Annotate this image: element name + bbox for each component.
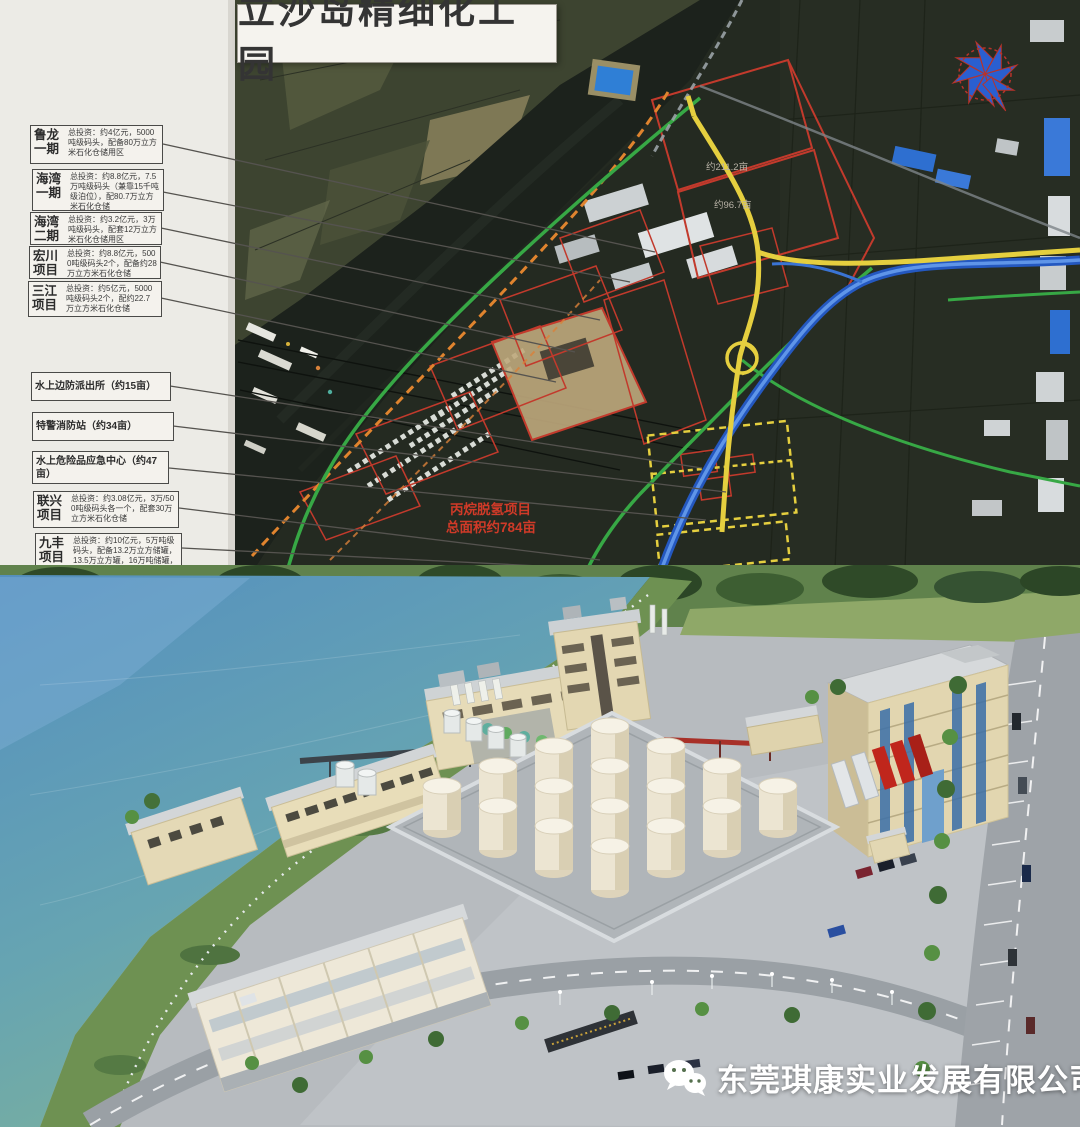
map-title: 立沙岛精细化工园 xyxy=(237,4,557,63)
parcel-area-label: 约211.2亩 xyxy=(706,161,748,173)
project-desc: 总投资：约5亿元，5000吨级码头2个，配约22.7万立方米石化仓储 xyxy=(66,284,158,314)
masterplan-map: 约211.2亩 约96.7亩 丙烷脱氢项目 总面积约784亩 xyxy=(0,0,1080,568)
project-name: 联兴项目 xyxy=(37,494,67,525)
callout-sanjiang: 三江项目 总投资：约5亿元，5000吨级码头2个，配约22.7万立方米石化仓储 xyxy=(28,281,162,317)
project-desc: 总投资：约3.2亿元，3万吨级码头，配套12万立方米石化仓储用区 xyxy=(68,215,158,242)
map-title-text: 立沙岛精细化工园 xyxy=(238,0,556,88)
project-name: 宏川项目 xyxy=(33,249,63,276)
callout-haiwan-phase1: 海湾一期 总投资：约8.8亿元，7.5万吨级码头（兼靠15千吨级泊位），配80.… xyxy=(32,169,164,211)
facility-render-art xyxy=(0,565,1080,1127)
project-name: 海湾一期 xyxy=(36,172,66,208)
watermark: 东莞琪康实业发展有限公司 xyxy=(662,1055,1080,1100)
pond xyxy=(594,66,633,96)
callout-lulong-phase1: 鲁龙一期 总投资：约4亿元，5000吨级码头，配备80万立方米石化仓储用区 xyxy=(30,125,163,164)
watermark-company-name: 东莞琪康实业发展有限公司 xyxy=(717,1055,1080,1100)
callout-emergency-center: 水上危险品应急中心（约47亩） xyxy=(32,451,169,484)
callout-haiwan-phase2: 海湾二期 总投资：约3.2亿元，3万吨级码头，配套12万立方米石化仓储用区 xyxy=(30,212,162,245)
project-desc: 总投资：约8.8亿元，7.5万吨级码头（兼靠15千吨级泊位），配80.7万立方米… xyxy=(70,172,160,208)
callout-lianxing: 联兴项目 总投资：约3.08亿元，3万/500吨级码头各一个，配套30万立方米石… xyxy=(33,491,179,528)
farmland-east xyxy=(780,0,1080,568)
parcel-area-label: 约96.7亩 xyxy=(714,199,752,211)
project-name: 九丰项目 xyxy=(39,536,69,565)
svg-text:总面积约784亩: 总面积约784亩 xyxy=(446,519,536,535)
facility-label: 水上危险品应急中心（约47亩） xyxy=(36,455,165,481)
callout-fire-station: 特警消防站（约34亩） xyxy=(32,412,174,441)
callout-border-police-station: 水上边防派出所（约15亩） xyxy=(31,372,171,401)
project-name: 海湾二期 xyxy=(34,215,64,242)
wechat-icon xyxy=(662,1058,708,1098)
facility-label: 水上边防派出所（约15亩） xyxy=(35,380,156,393)
project-desc: 总投资：约10亿元，5万吨级码头，配备13.2万立方储罐，13.5万立方罐，16… xyxy=(73,536,178,565)
project-name: 三江项目 xyxy=(32,284,62,314)
project-name: 鲁龙一期 xyxy=(34,128,64,161)
project-desc: 总投资：约8.8亿元，5000吨级码头2个，配备约28万立方米石化仓储 xyxy=(67,249,157,276)
facility-render: 东莞琪康实业发展有限公司 xyxy=(0,565,1080,1127)
poster: 约211.2亩 约96.7亩 丙烷脱氢项目 总面积约784亩 xyxy=(0,0,1080,1127)
project-desc: 总投资：约4亿元，5000吨级码头，配备80万立方米石化仓储用区 xyxy=(68,128,159,161)
callout-hongchuan: 宏川项目 总投资：约8.8亿元，5000吨级码头2个，配备约28万立方米石化仓储 xyxy=(29,246,161,279)
svg-text:丙烷脱氢项目: 丙烷脱氢项目 xyxy=(450,501,531,517)
facility-label: 特警消防站（约34亩） xyxy=(36,420,137,433)
callout-jiufeng: 九丰项目 总投资：约10亿元，5万吨级码头，配备13.2万立方储罐，13.5万立… xyxy=(35,533,182,568)
project-desc: 总投资：约3.08亿元，3万/500吨级码头各一个，配套30万立方米石化仓储 xyxy=(71,494,175,525)
